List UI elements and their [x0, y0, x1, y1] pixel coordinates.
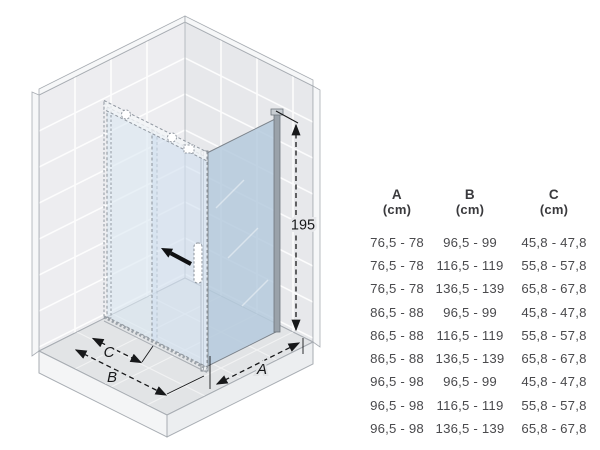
dim-b-label: B [107, 369, 117, 386]
table-row: 96,5 - 98116,5 - 11955,8 - 57,8 [364, 394, 598, 417]
table-row: 86,5 - 88116,5 - 11955,8 - 57,8 [364, 324, 598, 347]
product-dimension-sheet: 195 A C B A (cm) B [0, 0, 600, 450]
table-cell: 86,5 - 88 [364, 347, 430, 370]
table-row: 86,5 - 8896,5 - 9945,8 - 47,8 [364, 301, 598, 324]
table-cell: 96,5 - 98 [364, 417, 430, 440]
table-cell: 45,8 - 47,8 [510, 370, 598, 393]
door-fixed-segment [107, 107, 157, 342]
column-unit: (cm) [510, 203, 598, 217]
column-header-c: C (cm) [510, 188, 598, 217]
table-row: 76,5 - 78116,5 - 11955,8 - 57,8 [364, 254, 598, 277]
wall-mount-profile [274, 114, 280, 332]
column-unit: (cm) [432, 203, 508, 217]
height-label: 195 [291, 218, 315, 234]
column-header-a: A (cm) [364, 188, 430, 217]
dim-c-label: C [104, 344, 115, 361]
table-cell: 116,5 - 119 [432, 324, 508, 347]
table-cell: 55,8 - 57,8 [510, 254, 598, 277]
column-letter: A [364, 188, 430, 203]
table-cell: 55,8 - 57,8 [510, 394, 598, 417]
column-letter: C [510, 188, 598, 203]
table-cell: 96,5 - 99 [432, 301, 508, 324]
table-row: 76,5 - 78136,5 - 13965,8 - 67,8 [364, 277, 598, 300]
table-cell: 76,5 - 78 [364, 231, 430, 254]
table-cell: 136,5 - 139 [432, 277, 508, 300]
table-cell: 96,5 - 99 [432, 231, 508, 254]
column-letter: B [432, 188, 508, 203]
table-cell: 65,8 - 67,8 [510, 277, 598, 300]
rail-bracket [184, 145, 194, 153]
dimension-table: A (cm) B (cm) C (cm) 76,5 - 7896,5 - 994… [364, 188, 598, 440]
table-body: 76,5 - 7896,5 - 9945,8 - 47,876,5 - 7811… [364, 231, 598, 441]
table-cell: 65,8 - 67,8 [510, 347, 598, 370]
table-row: 76,5 - 7896,5 - 9945,8 - 47,8 [364, 231, 598, 254]
table-cell: 86,5 - 88 [364, 324, 430, 347]
roller [168, 133, 177, 142]
shower-enclosure-diagram: 195 A C B [0, 0, 345, 450]
table-row: 96,5 - 9896,5 - 9945,8 - 47,8 [364, 370, 598, 393]
table-cell: 96,5 - 98 [364, 394, 430, 417]
table-cell: 136,5 - 139 [432, 347, 508, 370]
column-unit: (cm) [364, 203, 430, 217]
table-cell: 55,8 - 57,8 [510, 324, 598, 347]
roller [122, 110, 131, 119]
table-cell: 45,8 - 47,8 [510, 301, 598, 324]
table-cell: 116,5 - 119 [432, 394, 508, 417]
table-cell: 65,8 - 67,8 [510, 417, 598, 440]
table-row: 96,5 - 98136,5 - 13965,8 - 67,8 [364, 417, 598, 440]
table-header: A (cm) B (cm) C (cm) [364, 188, 598, 217]
table-cell: 86,5 - 88 [364, 301, 430, 324]
door-handle [194, 243, 202, 283]
table-cell: 45,8 - 47,8 [510, 231, 598, 254]
table-cell: 136,5 - 139 [432, 417, 508, 440]
table-row: 86,5 - 88136,5 - 13965,8 - 67,8 [364, 347, 598, 370]
dim-a-label: A [256, 361, 267, 378]
table-cell: 96,5 - 99 [432, 370, 508, 393]
table-cell: 76,5 - 78 [364, 277, 430, 300]
table-cell: 116,5 - 119 [432, 254, 508, 277]
column-header-b: B (cm) [432, 188, 508, 217]
table-cell: 76,5 - 78 [364, 254, 430, 277]
table-cell: 96,5 - 98 [364, 370, 430, 393]
